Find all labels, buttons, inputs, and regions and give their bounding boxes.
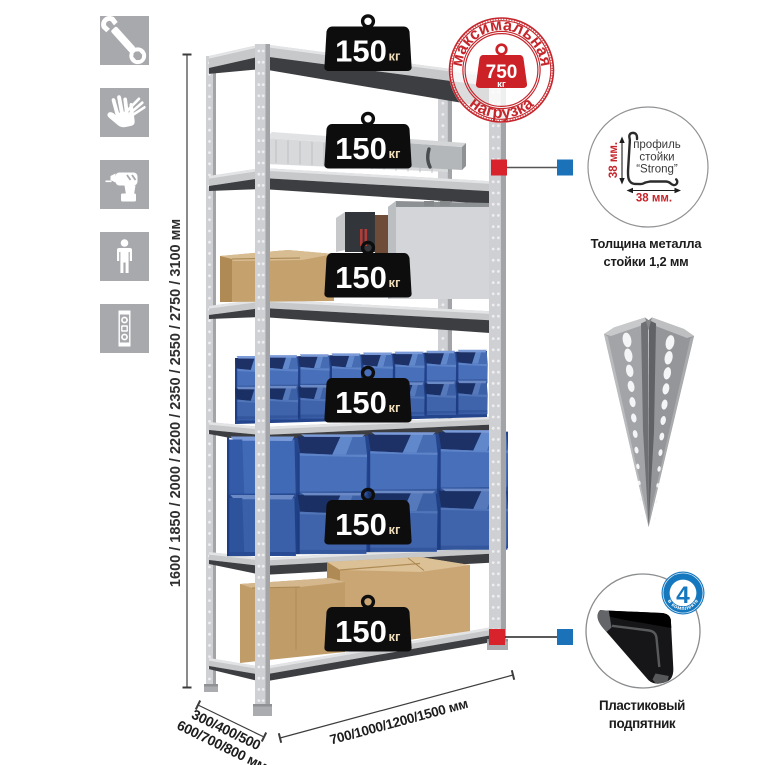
svg-text:кг: кг [497,79,506,90]
svg-text:38 мм.: 38 мм. [636,193,672,205]
svg-text:профиль: профиль [633,139,681,151]
svg-text:Пластиковый: Пластиковый [599,698,685,713]
svg-text:кг: кг [389,49,402,64]
svg-text:кг: кг [389,146,402,161]
svg-text:подпятник: подпятник [609,716,676,731]
svg-text:38 мм.: 38 мм. [608,142,620,178]
svg-text:700/1000/1200/1500 мм: 700/1000/1200/1500 мм [328,696,470,748]
svg-text:“Strong”: “Strong” [636,164,678,176]
svg-text:кг: кг [389,275,402,290]
svg-text:1600 / 1850 / 2000 / 2200 / 23: 1600 / 1850 / 2000 / 2200 / 2350 / 2550 … [168,219,184,587]
svg-text:150: 150 [335,385,387,420]
svg-text:150: 150 [335,507,387,542]
svg-text:150: 150 [335,34,387,69]
svg-text:150: 150 [335,131,387,166]
svg-text:кг: кг [389,629,402,644]
svg-text:150: 150 [335,614,387,649]
svg-text:кг: кг [389,400,402,415]
svg-text:150: 150 [335,260,387,295]
svg-text:стойки 1,2 мм: стойки 1,2 мм [603,254,688,269]
svg-text:стойки: стойки [639,152,674,164]
svg-text:Толщина металла: Толщина металла [591,236,703,251]
svg-text:кг: кг [389,522,402,537]
